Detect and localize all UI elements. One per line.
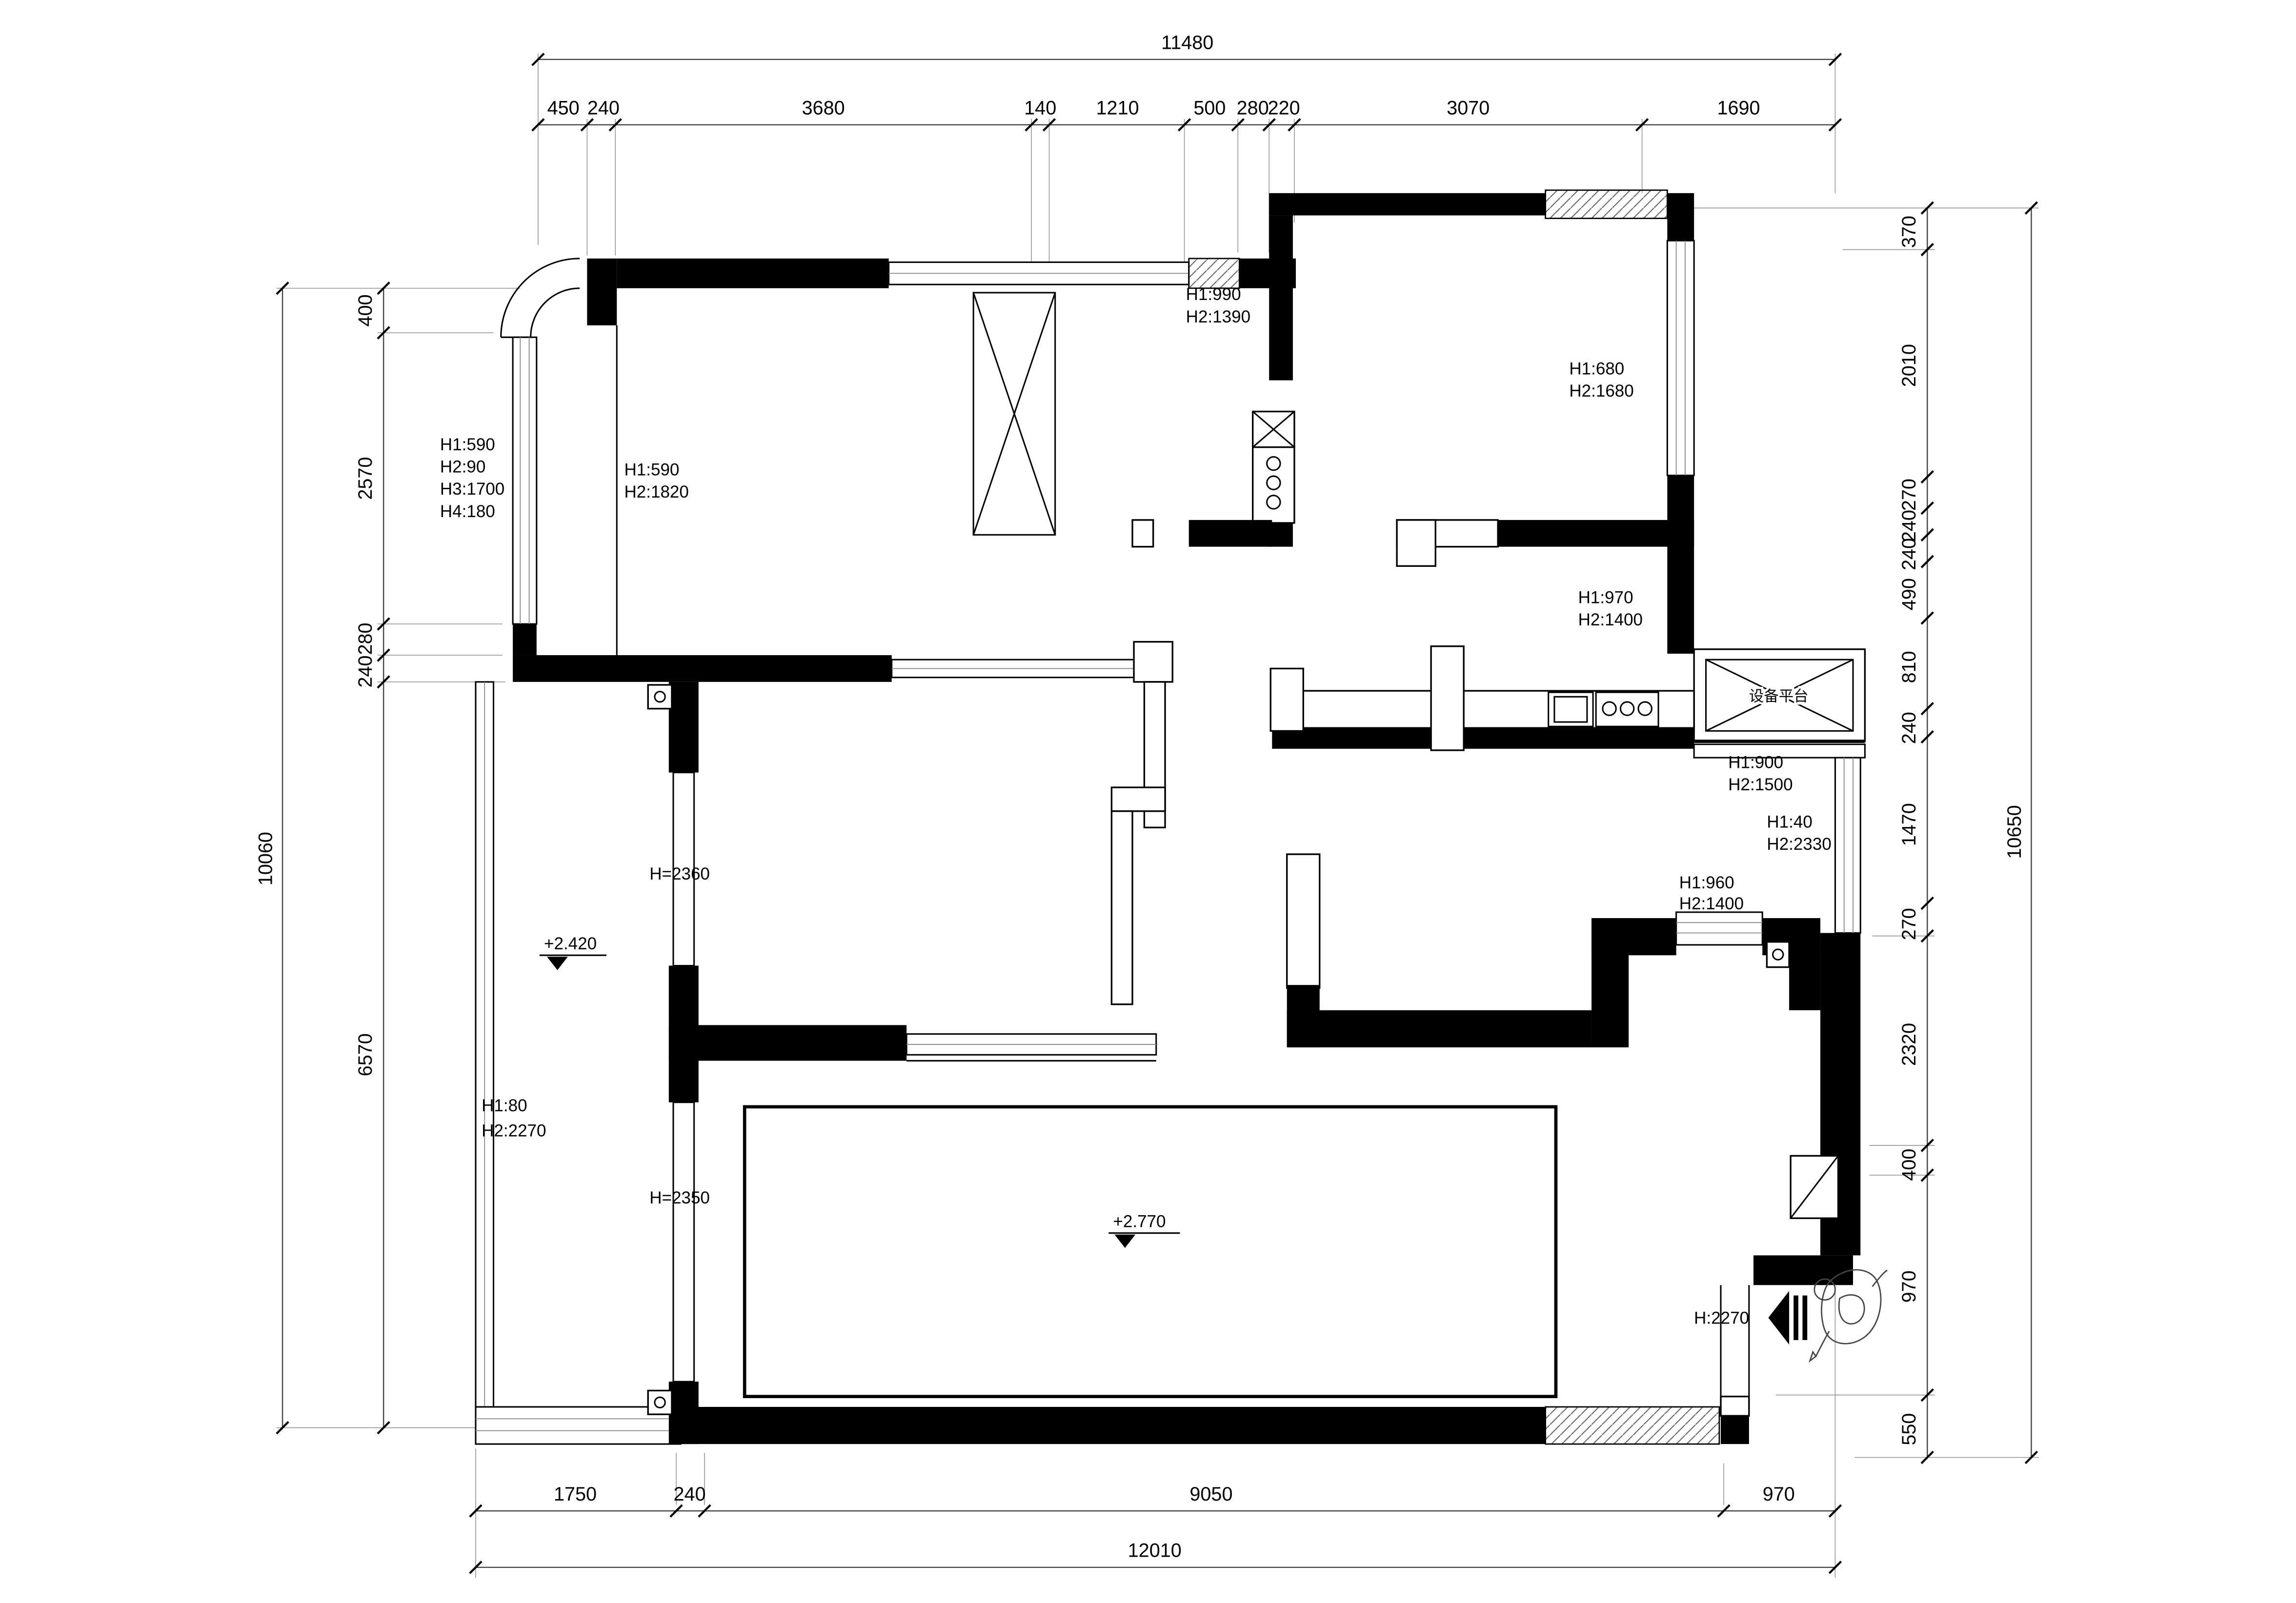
equipment-platform-label: 设备平台: [1749, 688, 1809, 704]
dim-right-13: 550: [1898, 1413, 1920, 1445]
wall-corner-ne: [1667, 193, 1694, 240]
dim-top-5: 500: [1193, 97, 1226, 119]
tr-jog-box: [1397, 520, 1435, 566]
floor-plan-canvas: 11480 450 240 3680 140 1210 500 280 220 …: [0, 0, 2296, 1603]
pier-v1: [1270, 668, 1303, 731]
dim-top-4: 1210: [1096, 97, 1139, 119]
wall-top-right-up: [1269, 193, 1545, 216]
ann-top-center-1: H1:990: [1186, 285, 1241, 304]
dim-top-0: 450: [547, 97, 580, 119]
entry-pier-top: [1721, 1397, 1749, 1416]
ann-top-right-2: H2:1680: [1569, 381, 1633, 401]
ann-right-bedroom-1: H1:960: [1679, 873, 1734, 892]
ann-left-balcony-2: H2:2270: [482, 1122, 546, 1141]
post-marker-bottom: [648, 1391, 672, 1415]
ann-left-upper-2: H2:90: [440, 457, 485, 476]
partition-b: [1111, 811, 1132, 1004]
kitchen-door-cap: [1132, 520, 1153, 547]
bed-wall-b: [1287, 1010, 1591, 1047]
dim-right-10: 2320: [1898, 1023, 1920, 1066]
wall-entry-south: [1753, 1255, 1853, 1285]
dim-top-total: 11480: [1161, 32, 1213, 53]
height-living: H=2350: [649, 1188, 710, 1207]
window-hatch-top: [1189, 259, 1240, 288]
ann-mid-right-1: H1:970: [1578, 588, 1633, 607]
ann-right-bedroom-2: H2:1400: [1679, 894, 1744, 913]
dim-right-11: 400: [1898, 1149, 1920, 1181]
window-right-bedroom-box: [1676, 912, 1763, 945]
wall-bottom: [681, 1407, 1545, 1444]
elevation-left-balcony: +2.420: [540, 934, 606, 970]
tr-bottom-wall: [1498, 520, 1694, 547]
window-hatch-top-right: [1546, 190, 1668, 219]
dim-left-3: 240: [355, 656, 376, 688]
dim-bottom-total: 12010: [1128, 1540, 1182, 1562]
kitchen-south-wall: [1272, 728, 1694, 749]
entry-direction-arrow: [1768, 1291, 1807, 1344]
ann-left-balcony-1: H1:80: [482, 1096, 527, 1115]
svg-text:+2.770: +2.770: [1113, 1212, 1166, 1231]
kitchen-pier: [1189, 520, 1272, 547]
dim-bottom-1: 240: [673, 1483, 705, 1505]
wall-int-2: [669, 1025, 906, 1061]
wall-t-cap: [1134, 642, 1172, 682]
ann-left-upper-3: H3:1700: [440, 480, 504, 499]
window-right-balcony: [1835, 758, 1861, 933]
partition-jog: [1111, 787, 1165, 811]
curved-corner-window: [501, 259, 580, 337]
bed-wall-f: [1789, 942, 1820, 1010]
ann-platform-2: H2:1500: [1728, 775, 1792, 794]
dim-right-12: 970: [1898, 1270, 1920, 1302]
dim-top-2: 3680: [802, 97, 845, 119]
ann-left-upper-1: H1:590: [440, 435, 495, 454]
dim-right-0: 370: [1898, 216, 1920, 248]
ann-topleft-room-2: H2:1820: [624, 482, 688, 501]
living-area-rect: [745, 1107, 1556, 1397]
wall-tr-left-a: [1269, 216, 1293, 381]
ann-right-balcony-2: H2:2330: [1767, 835, 1831, 854]
window-left-upper: [513, 337, 537, 624]
dim-top-8: 3070: [1447, 97, 1490, 119]
dim-right-7: 240: [1898, 712, 1920, 744]
dim-top-6: 280: [1237, 97, 1269, 119]
wall-pier-arc: [587, 259, 617, 325]
svg-text:+2.420: +2.420: [544, 934, 597, 953]
wall-v-a: [669, 682, 699, 773]
dim-right-outer-total: 10650: [2004, 805, 2025, 859]
dim-left-1: 2570: [355, 457, 376, 500]
dim-right-8: 1470: [1898, 803, 1920, 846]
post-marker-right: [1767, 942, 1789, 967]
kitchen-counter: [1287, 691, 1694, 728]
wall-east-mid: [1667, 476, 1694, 654]
entry-pier: [1721, 1416, 1749, 1444]
appliance-stack: [1253, 412, 1294, 523]
window-top-right: [1667, 240, 1694, 475]
dim-top-1: 240: [587, 97, 620, 119]
dim-bottom-0: 1750: [554, 1483, 597, 1505]
wall-top-left: [617, 259, 888, 288]
dim-right-3: 240: [1898, 510, 1920, 542]
wall-int-1: [513, 655, 892, 682]
bed-wall-outline: [1287, 854, 1320, 988]
bed-wall-d: [1591, 918, 1676, 955]
ann-platform-1: H1:900: [1728, 753, 1783, 772]
dim-right-9: 270: [1898, 908, 1920, 940]
pier-v2: [1431, 646, 1464, 750]
height-hall: H=2360: [649, 864, 710, 883]
dim-right-1: 2010: [1898, 344, 1920, 387]
post-marker-top: [648, 685, 672, 709]
dim-top-7: 220: [1268, 97, 1300, 119]
dim-left-4: 6570: [355, 1033, 376, 1076]
dim-bottom-2: 9050: [1189, 1483, 1232, 1505]
dim-right-5: 490: [1898, 578, 1920, 610]
ann-top-center-2: H2:1390: [1186, 307, 1250, 326]
wall-v-c: [669, 1382, 699, 1444]
dim-right-4: 240: [1898, 538, 1920, 570]
dim-top-3: 140: [1024, 97, 1056, 119]
ann-entry-door: H:2270: [1694, 1308, 1749, 1327]
shaft-x-brace: [973, 293, 1055, 535]
wall-left-pier: [513, 624, 537, 655]
dim-left-outer-total: 10060: [255, 832, 277, 885]
ann-top-right-1: H1:680: [1569, 359, 1624, 378]
wall-v-win2: [673, 1102, 694, 1382]
ann-topleft-room-1: H1:590: [624, 461, 679, 480]
ann-left-upper-4: H4:180: [440, 502, 495, 521]
dim-right-2: 270: [1898, 479, 1920, 511]
ann-mid-right-2: H2:1400: [1578, 610, 1643, 629]
dim-left-2: 280: [355, 623, 376, 655]
ann-right-balcony-1: H1:40: [1767, 812, 1812, 831]
dim-bottom-3: 970: [1763, 1483, 1795, 1505]
elevation-living: +2.770: [1108, 1212, 1180, 1248]
dim-top-9: 1690: [1717, 97, 1760, 119]
window-hatch-bottom: [1546, 1407, 1719, 1444]
dim-right-6: 810: [1898, 651, 1920, 683]
wall-tr-left-b: [1269, 523, 1293, 547]
dim-left-0: 400: [355, 294, 376, 326]
